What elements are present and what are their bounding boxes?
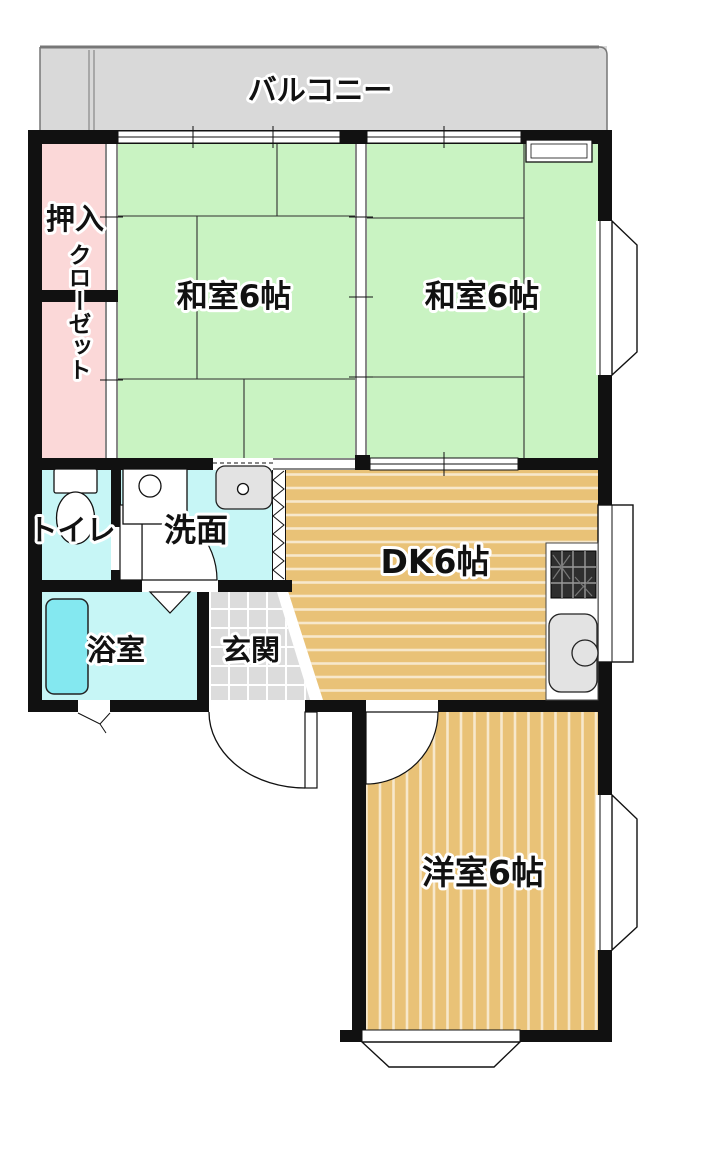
bathroom-label: 浴室 bbox=[87, 633, 145, 667]
window-dk-right bbox=[598, 505, 633, 662]
balcony-label: バルコニー bbox=[248, 73, 392, 107]
washbasin-icon bbox=[216, 466, 272, 509]
bathtub-icon bbox=[46, 599, 88, 694]
entrance-door bbox=[209, 700, 317, 788]
dk-label: DK6帖 bbox=[381, 542, 490, 581]
washroom-label: 洗面 bbox=[164, 511, 228, 549]
air-conditioner-icon bbox=[526, 140, 592, 162]
oshiire-label: 押入 bbox=[46, 202, 104, 236]
bay-window-western-room bbox=[596, 795, 637, 950]
opening-washitsu-hall bbox=[273, 458, 355, 470]
bathroom-vent-mark bbox=[78, 713, 110, 733]
bay-window-washitsu-right bbox=[596, 221, 637, 375]
western-room-label: 洋室6帖 bbox=[422, 853, 544, 892]
toilet-label: トイレ bbox=[28, 513, 115, 547]
floor-plan: バルコニー 押入 クローゼット 和室6帖 和室6帖 トイレ 洗面 DK6帖 浴室… bbox=[0, 0, 718, 1169]
closet-label: クローゼット bbox=[64, 243, 92, 381]
washitsu-right-label: 和室6帖 bbox=[425, 279, 540, 315]
bay-window-western-room-bottom bbox=[362, 1030, 520, 1067]
entrance-label: 玄関 bbox=[222, 633, 280, 667]
washitsu-left-label: 和室6帖 bbox=[177, 279, 292, 315]
folding-door-washroom-dk bbox=[272, 470, 286, 580]
stove-icon bbox=[551, 551, 596, 598]
kitchen-sink-icon bbox=[549, 614, 598, 692]
